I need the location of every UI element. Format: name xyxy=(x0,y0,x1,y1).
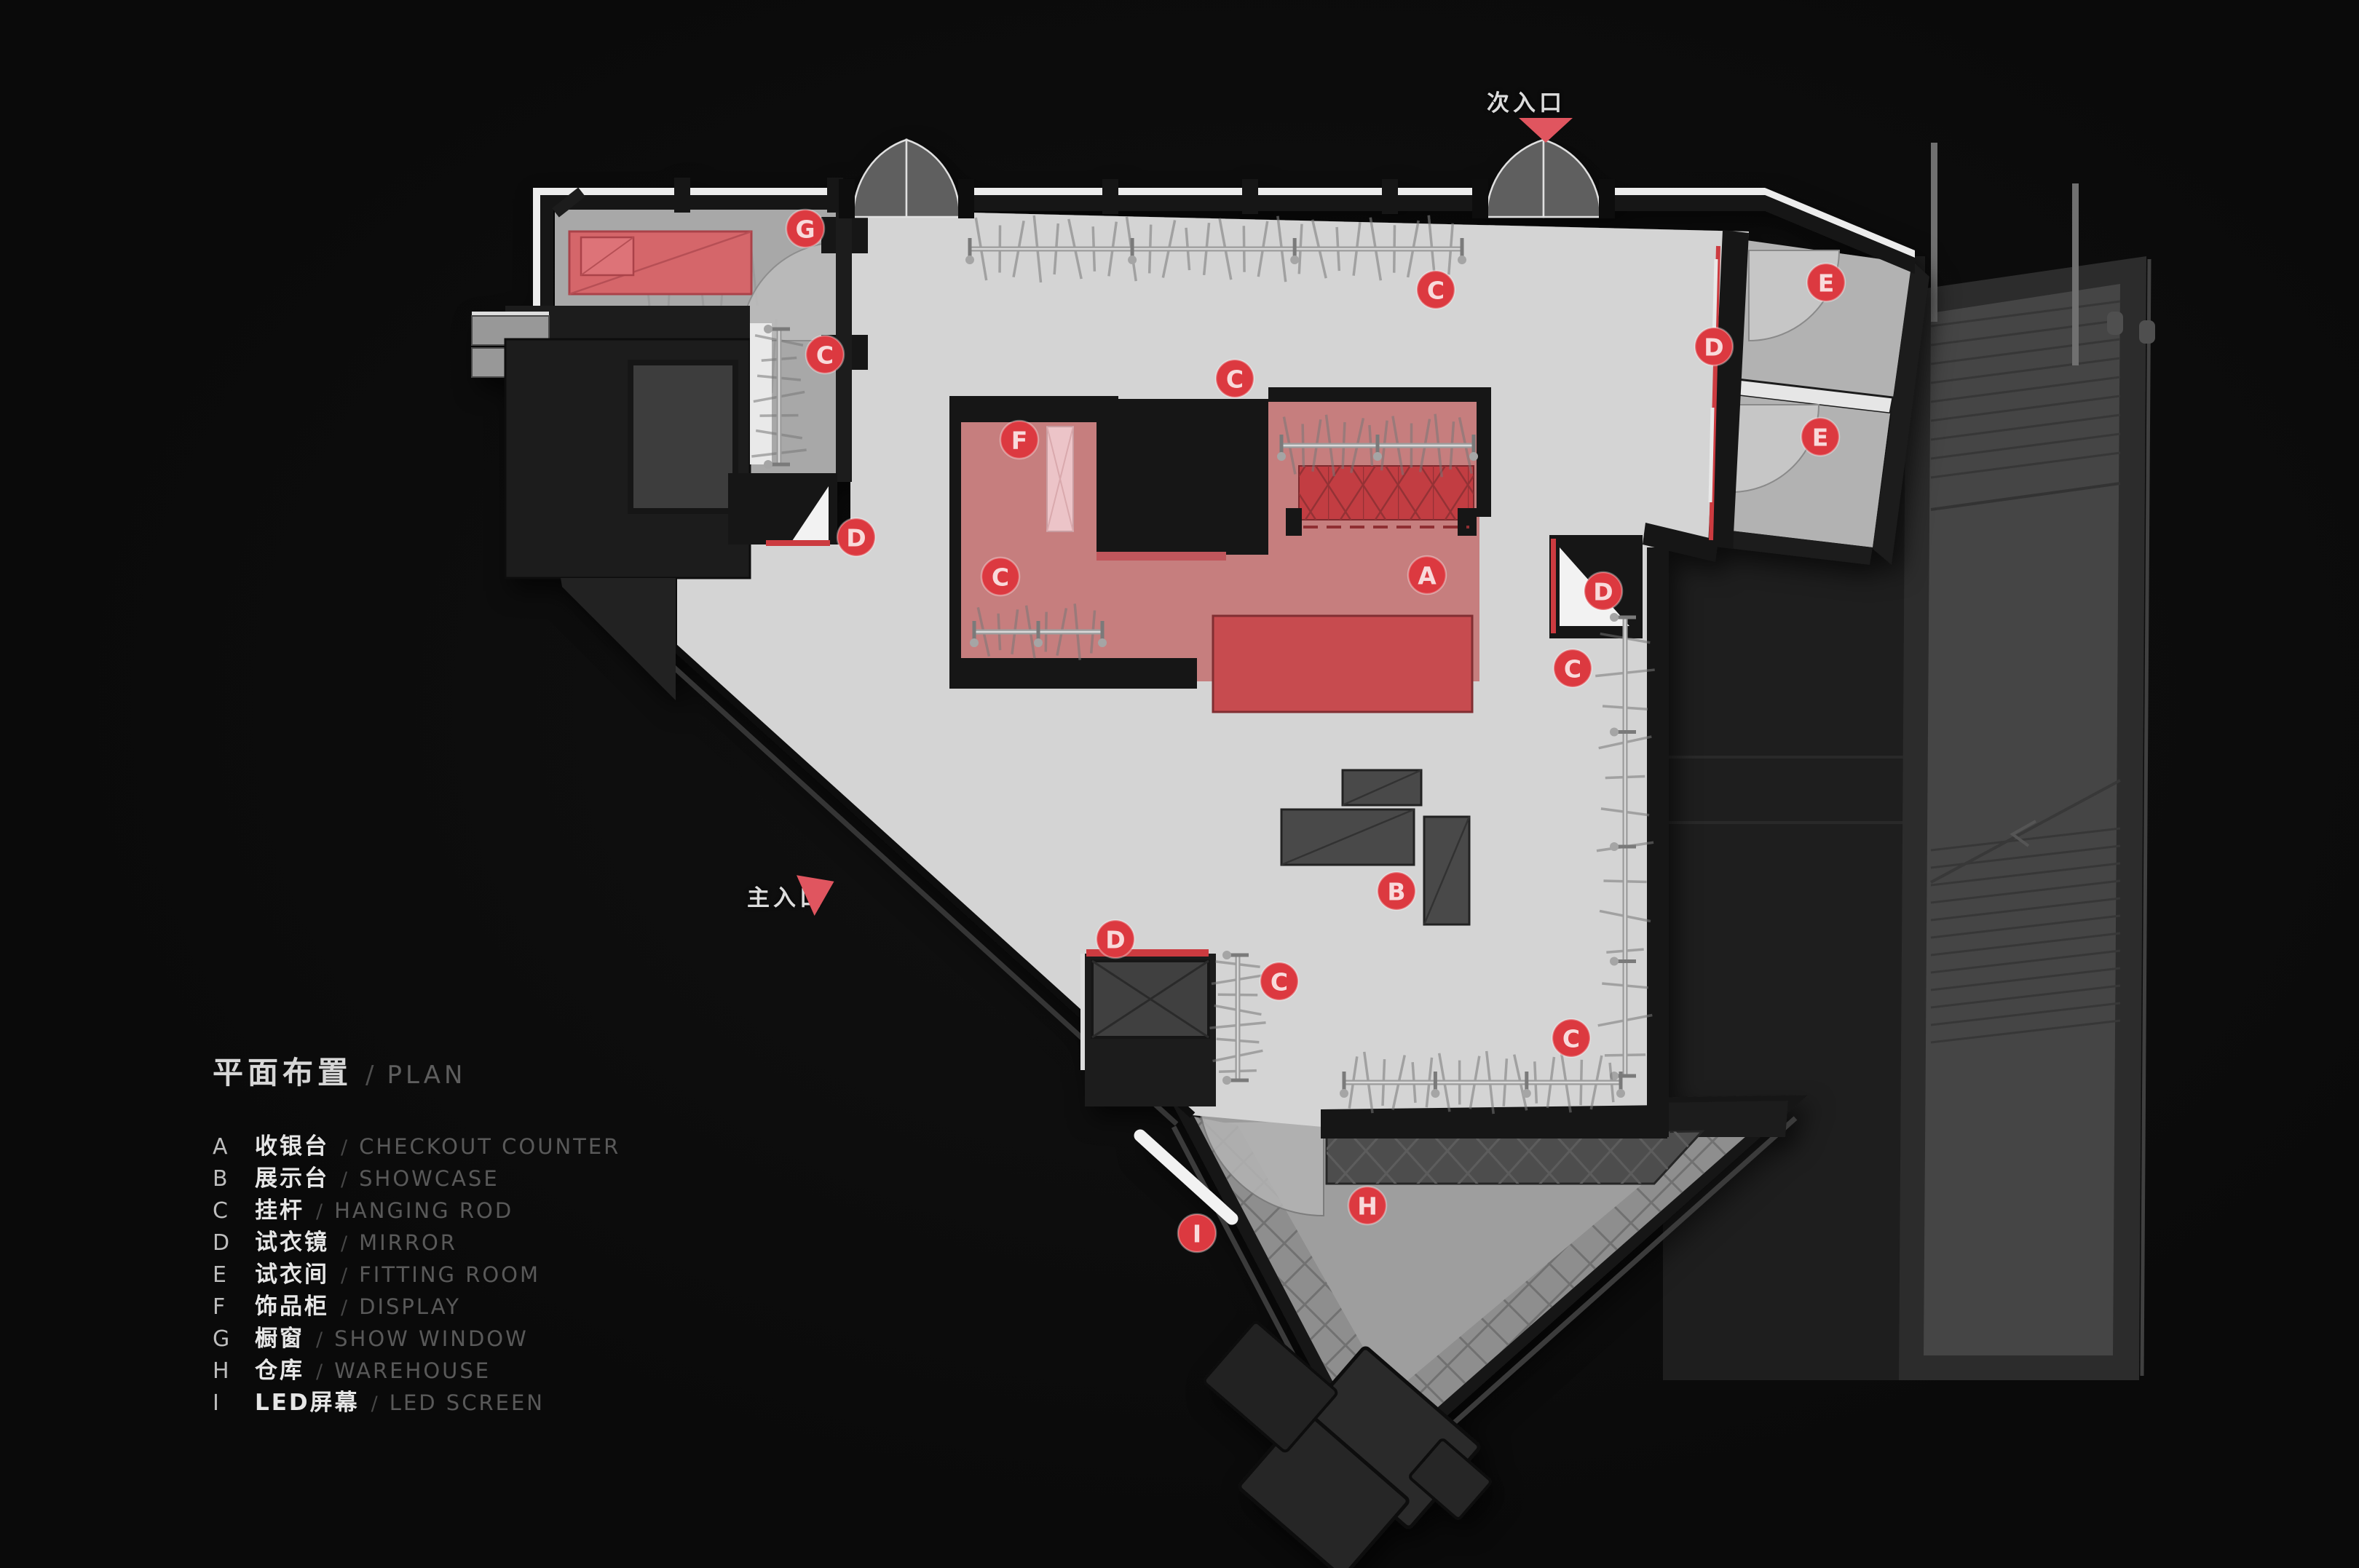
svg-text:C: C xyxy=(1562,1025,1580,1053)
facade-wall-band xyxy=(1606,195,1765,211)
legend-separator: / xyxy=(371,1388,378,1420)
door-post xyxy=(839,179,855,218)
stair-rail-post xyxy=(2072,183,2079,365)
stair-newel xyxy=(2107,312,2123,335)
legend-en: LED SCREEN xyxy=(390,1387,545,1419)
door-leaf xyxy=(906,140,960,217)
legend-en: WAREHOUSE xyxy=(334,1355,491,1387)
marker-C-15: C xyxy=(1260,962,1298,1000)
legend-key: B xyxy=(213,1163,243,1195)
svg-text:C: C xyxy=(992,563,1009,592)
svg-text:A: A xyxy=(1418,562,1437,590)
legend-en: HANGING ROD xyxy=(334,1195,513,1227)
svg-text:C: C xyxy=(1271,968,1288,997)
svg-text:C: C xyxy=(816,341,834,370)
mullion-tick xyxy=(1242,179,1258,214)
secondary-entrance-label: 次入口 xyxy=(1487,84,1565,117)
svg-text:D: D xyxy=(1105,926,1125,954)
legend-key: C xyxy=(213,1195,243,1227)
mullion-tick xyxy=(1102,179,1118,214)
red-zone-wall xyxy=(949,658,1197,689)
glazing-line xyxy=(963,188,1482,195)
svg-text:F: F xyxy=(1011,427,1028,455)
mullion-tick xyxy=(674,178,690,213)
legend-zh: 仓库 xyxy=(255,1355,304,1387)
door-post xyxy=(1599,179,1615,218)
door-post xyxy=(958,179,974,218)
mirror-block-south xyxy=(1080,949,1216,1106)
shaft-chamfer xyxy=(561,578,676,700)
bench-cap xyxy=(1458,508,1477,536)
legend-separator: / xyxy=(341,1260,347,1292)
marker-B-13: B xyxy=(1378,872,1415,910)
secondary-entrance-door xyxy=(1472,140,1615,218)
legend-row-c: C 挂杆 / HANGING ROD xyxy=(213,1195,620,1227)
mirror-white-edge xyxy=(1080,954,1085,1070)
door-post xyxy=(1472,179,1488,218)
stair-rail-post xyxy=(1931,143,1937,322)
legend-zh: 收银台 xyxy=(255,1131,329,1163)
svg-text:C: C xyxy=(1427,277,1445,305)
legend-key: H xyxy=(213,1355,243,1387)
facade-wall-band xyxy=(963,195,1482,211)
red-sliver xyxy=(1096,552,1226,561)
legend-row-a: A 收银台 / CHECKOUT COUNTER xyxy=(213,1131,620,1163)
red-zone-wall xyxy=(949,405,961,687)
legend-separator: / xyxy=(341,1228,347,1260)
red-zone-wall xyxy=(949,396,1118,422)
legend-key: F xyxy=(213,1291,243,1323)
marker-C-9: C xyxy=(981,558,1019,595)
legend-zh: 橱窗 xyxy=(255,1323,304,1355)
legend-separator: / xyxy=(316,1324,323,1356)
legend-row-h: H 仓库 / WAREHOUSE xyxy=(213,1355,620,1387)
legend-en: CHECKOUT COUNTER xyxy=(359,1131,620,1163)
legend-zh: 饰品柜 xyxy=(255,1291,329,1323)
red-zone-wall xyxy=(1268,387,1491,402)
legend-row-g: G 橱窗 / SHOW WINDOW xyxy=(213,1323,620,1355)
marker-D-14: D xyxy=(1096,920,1134,958)
legend-key: A xyxy=(213,1131,243,1163)
svg-text:G: G xyxy=(795,215,815,244)
legend-title-zh: 平面布置 xyxy=(213,1048,352,1093)
legend-zh: 挂杆 xyxy=(255,1195,304,1227)
legend-en: MIRROR xyxy=(359,1227,457,1259)
svg-text:C: C xyxy=(1226,365,1244,394)
marker-F-4: F xyxy=(1000,421,1038,459)
mirror-red-edge xyxy=(1551,539,1556,633)
room-left-wall xyxy=(540,195,553,316)
legend-separator: / xyxy=(341,1164,347,1196)
legend-key: G xyxy=(213,1323,243,1355)
svg-text:D: D xyxy=(846,524,866,553)
legend-key: I xyxy=(213,1387,243,1419)
svg-text:E: E xyxy=(1812,424,1829,452)
room-top-wall xyxy=(542,195,850,210)
marker-I-18: I xyxy=(1178,1214,1216,1252)
svg-text:D: D xyxy=(1704,333,1723,362)
mirror-red-edge xyxy=(766,540,830,546)
marker-E-7: E xyxy=(1801,418,1839,456)
marker-D-8: D xyxy=(837,518,875,556)
legend-title-separator: / xyxy=(365,1061,374,1090)
svg-text:C: C xyxy=(1564,655,1581,684)
marker-C-1: C xyxy=(806,336,844,373)
marker-D-6: D xyxy=(1695,328,1733,365)
legend-key: D xyxy=(213,1227,243,1259)
west-entrance-door xyxy=(839,140,974,218)
staircase-floor xyxy=(1924,284,2120,1355)
door-leaf xyxy=(853,140,906,217)
marker-C-3: C xyxy=(1417,271,1455,309)
legend-key: E xyxy=(213,1259,243,1291)
legend-separator: / xyxy=(316,1356,323,1388)
legend-zh: LED屏幕 xyxy=(255,1387,360,1419)
legend-separator: / xyxy=(341,1292,347,1324)
legend-row-e: E 试衣间 / FITTING ROOM xyxy=(213,1259,620,1291)
glazing-line xyxy=(533,188,540,317)
door-leaf xyxy=(1487,140,1544,217)
marker-H-17: H xyxy=(1348,1187,1386,1224)
stair-newel xyxy=(2139,320,2155,344)
staircase xyxy=(1899,143,2155,1380)
legend-en: FITTING ROOM xyxy=(359,1259,540,1291)
legend-row-d: D 试衣镜 / MIRROR xyxy=(213,1227,620,1259)
legend-title-en: PLAN xyxy=(387,1061,466,1090)
marker-C-16: C xyxy=(1552,1019,1590,1057)
legend: 平面布置 / PLAN A 收银台 / CHECKOUT COUNTER B 展… xyxy=(213,1048,620,1419)
marker-C-12: C xyxy=(1554,649,1592,687)
svg-text:E: E xyxy=(1818,269,1835,298)
svg-text:B: B xyxy=(1387,878,1405,906)
legend-row-i: I LED屏幕 / LED SCREEN xyxy=(213,1387,620,1419)
legend-separator: / xyxy=(316,1196,323,1228)
checkout-counter xyxy=(1213,616,1472,712)
legend-row-f: F 饰品柜 / DISPLAY xyxy=(213,1291,620,1323)
marker-E-5: E xyxy=(1807,264,1845,301)
legend-title: 平面布置 / PLAN xyxy=(213,1048,620,1093)
marker-D-11: D xyxy=(1584,572,1622,610)
secondary-entrance-arrow-icon xyxy=(1519,118,1573,143)
svg-text:H: H xyxy=(1357,1192,1378,1221)
red-zone-wall xyxy=(1477,396,1491,517)
svg-text:I: I xyxy=(1193,1220,1201,1248)
svg-text:D: D xyxy=(1593,578,1613,606)
mullion-tick xyxy=(1382,179,1398,214)
glazing-line xyxy=(1606,188,1765,195)
shaft-cab xyxy=(631,363,735,511)
legend-en: DISPLAY xyxy=(359,1291,461,1323)
marker-G-0: G xyxy=(786,210,824,248)
legend-zh: 试衣镜 xyxy=(255,1227,329,1259)
legend-zh: 试衣间 xyxy=(255,1259,329,1291)
legend-row-b: B 展示台 / SHOWCASE xyxy=(213,1163,620,1195)
legend-en: SHOW WINDOW xyxy=(334,1323,529,1355)
bench-cap xyxy=(1286,508,1302,536)
marker-A-10: A xyxy=(1408,556,1446,594)
legend-zh: 展示台 xyxy=(255,1163,329,1195)
red-zone-column xyxy=(1096,399,1268,555)
fitting-room-door-white xyxy=(1710,408,1712,502)
marker-C-2: C xyxy=(1216,360,1254,397)
door-leaf xyxy=(1544,140,1600,217)
shaft-door-strip xyxy=(750,323,772,464)
floor-plan-canvas: GCCCFEDEDCADCBDCCHI 次入口 主入口 平面布置 / PLAN … xyxy=(0,0,2359,1568)
legend-separator: / xyxy=(341,1132,347,1164)
legend-en: SHOWCASE xyxy=(359,1163,499,1195)
